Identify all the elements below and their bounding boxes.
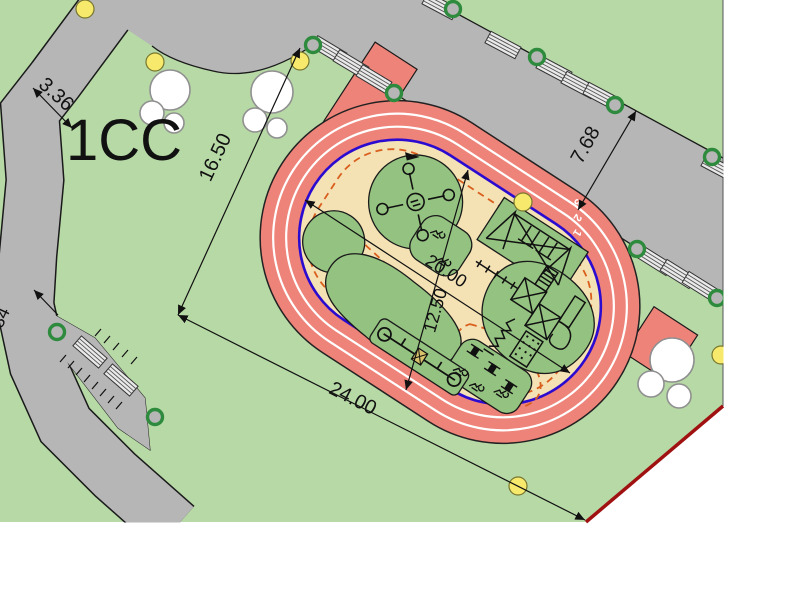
site-plan-page: 3 2 1 bbox=[0, 0, 799, 601]
page-margin-bottom bbox=[0, 523, 799, 601]
site-plan-drawing: 3 2 1 bbox=[0, 0, 799, 601]
site-label: 1CC bbox=[66, 108, 182, 173]
page-margin-right bbox=[724, 0, 799, 601]
